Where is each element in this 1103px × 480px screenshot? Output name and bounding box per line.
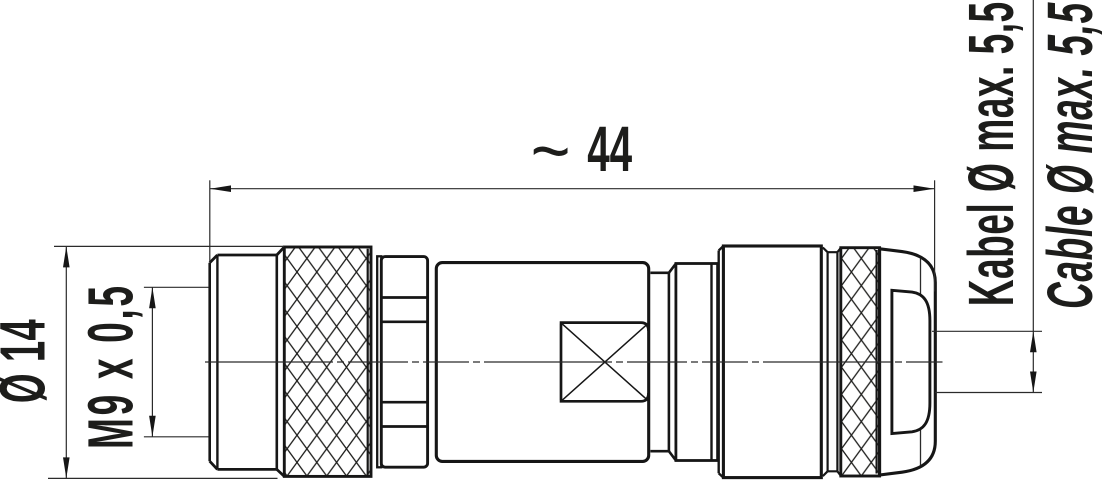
svg-text:M9 x 0,5: M9 x 0,5 bbox=[76, 286, 147, 449]
svg-text:Cable Ø max. 5,5: Cable Ø max. 5,5 bbox=[1036, 2, 1103, 309]
svg-text:~: ~ bbox=[531, 109, 571, 193]
svg-text:Kabel Ø max. 5,5: Kabel Ø max. 5,5 bbox=[957, 2, 1028, 307]
svg-text:44: 44 bbox=[587, 115, 632, 186]
svg-text:Ø 14: Ø 14 bbox=[0, 319, 59, 403]
